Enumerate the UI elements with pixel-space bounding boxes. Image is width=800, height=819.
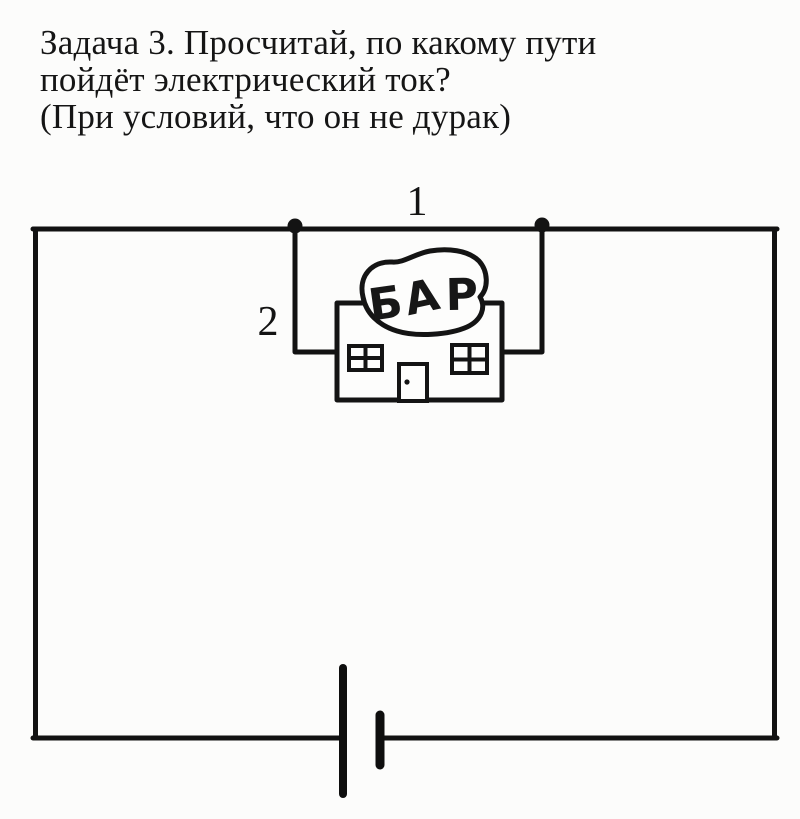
- door-panel: [399, 364, 427, 401]
- circuit-diagram: БАР 1 2: [0, 0, 800, 819]
- window-right: [452, 345, 487, 373]
- battery-symbol: [343, 668, 380, 794]
- bar-building: БАР: [337, 250, 502, 401]
- junction-dot-left: [288, 219, 303, 234]
- door: [399, 364, 427, 401]
- page-background: Задача 3. Просчитай, по какому пути пойд…: [0, 0, 800, 819]
- window-left: [349, 346, 382, 370]
- branch-wire-right: [502, 228, 542, 352]
- door-knob: [404, 379, 409, 384]
- path2-label: 2: [258, 299, 279, 345]
- path1-label: 1: [407, 179, 428, 225]
- branch-wire-left: [295, 228, 337, 352]
- junction-dot-right: [535, 218, 550, 233]
